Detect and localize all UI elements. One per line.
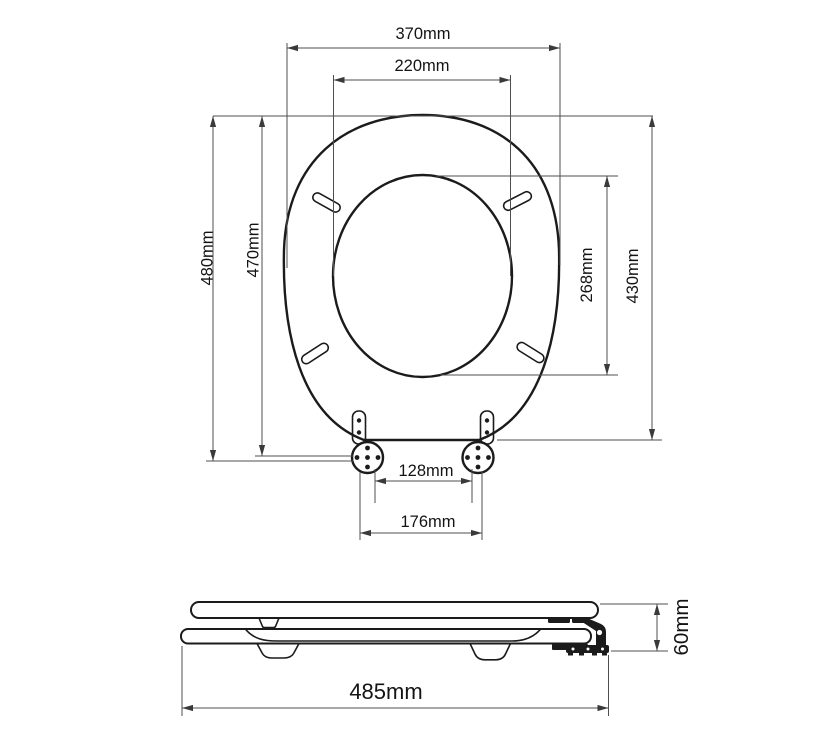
right-hinge-bolt-hole xyxy=(476,446,481,451)
dim-hinge-inner-spacing-label: 128mm xyxy=(398,462,453,480)
hinge-pivot xyxy=(597,630,602,635)
dim-overall-length-label: 480mm xyxy=(199,230,217,285)
dim-inner-width: 220mm xyxy=(334,57,511,276)
right-hinge xyxy=(463,411,494,473)
dim-hinge-outer-spacing-label: 176mm xyxy=(400,513,455,531)
hinge-bolt xyxy=(587,648,590,651)
left-hinge-tab-hole xyxy=(357,430,361,434)
left-hinge-tab-hole xyxy=(357,418,361,422)
dim-side-length: 485mm xyxy=(182,646,609,716)
left-hinge-bolt-hole xyxy=(365,465,370,470)
right-hinge-tab-hole xyxy=(485,430,489,434)
left-hinge-bolt-hole xyxy=(376,455,381,460)
side-view: 485mm 60mm xyxy=(181,599,693,716)
right-hinge-bolt-hole xyxy=(486,455,491,460)
dim-side-height-label: 60mm xyxy=(670,599,693,656)
seat-outer-outline xyxy=(284,115,559,440)
side-hinge xyxy=(548,618,609,656)
hinge-foot xyxy=(579,653,584,656)
bumper-slot-bottom-left xyxy=(300,342,330,366)
dim-seat-length-label: 470mm xyxy=(245,222,263,277)
right-hinge-bolt-hole xyxy=(465,455,470,460)
bumper-slot-top-right xyxy=(502,190,533,212)
dim-overall-length: 480mm xyxy=(199,116,354,461)
dim-outer-width-label: 370mm xyxy=(395,25,450,43)
toilet-seat-dimension-diagram: 370mm 220mm 480mm 470mm 268mm xyxy=(0,0,837,750)
left-hinge-bolt-hole xyxy=(365,455,370,460)
top-view: 370mm 220mm 480mm 470mm 268mm xyxy=(199,25,663,540)
dim-hinge-inner-spacing: 128mm xyxy=(375,462,472,503)
bumper-slot-top-left xyxy=(311,191,342,213)
lid-bumper xyxy=(259,618,279,628)
seat-surface-contour xyxy=(246,630,540,641)
hinge-foot xyxy=(592,653,597,656)
seat-bumper-front xyxy=(257,644,299,659)
hinge-lid-bracket xyxy=(548,618,570,624)
hinge-foot xyxy=(602,653,607,656)
left-hinge-bolt-hole xyxy=(365,446,370,451)
seat-inner-opening xyxy=(333,175,512,377)
dim-inner-length-label: 268mm xyxy=(578,247,596,302)
hinge-bolt xyxy=(572,648,575,651)
right-hinge-tab-hole xyxy=(485,418,489,422)
right-hinge-bolt-hole xyxy=(476,465,481,470)
lid-profile xyxy=(191,602,598,618)
hinge-foot xyxy=(568,653,573,656)
dim-seat-length: 470mm xyxy=(245,116,354,456)
right-hinge-bolt-hole xyxy=(476,455,481,460)
hinge-bolt xyxy=(601,648,604,651)
dim-side-height: 60mm xyxy=(600,599,693,656)
dim-inner-width-label: 220mm xyxy=(394,57,449,75)
bumper-slot-bottom-right xyxy=(515,341,545,365)
left-hinge-bolt-hole xyxy=(355,455,360,460)
drawing-canvas: 370mm 220mm 480mm 470mm 268mm xyxy=(0,0,837,750)
seat-bumper-rear xyxy=(470,644,511,660)
left-hinge xyxy=(352,411,383,473)
dim-outer-length-label: 430mm xyxy=(624,248,642,303)
dim-hinge-outer-spacing: 176mm xyxy=(360,472,482,540)
dim-side-length-label: 485mm xyxy=(349,679,422,704)
